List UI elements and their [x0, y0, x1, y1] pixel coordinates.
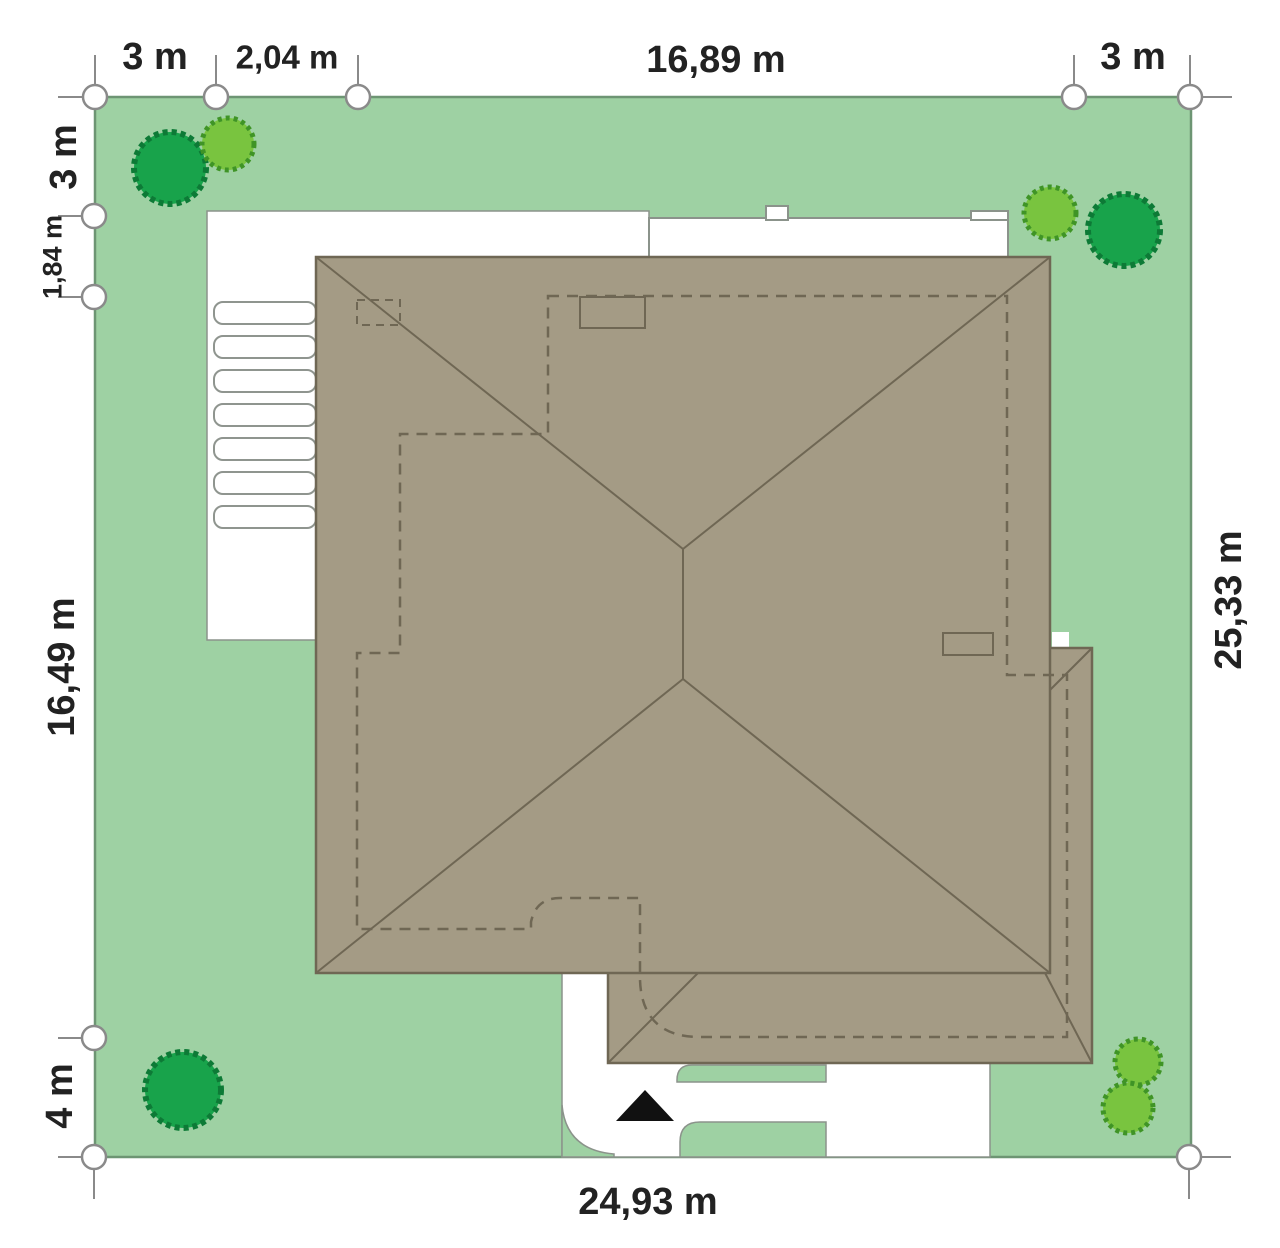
- dimension-node: [1178, 85, 1202, 109]
- tree-icon: [202, 118, 254, 170]
- dim-label-top-left: 3 m: [122, 38, 187, 76]
- dim-label-left-184: 1,84 m: [40, 215, 67, 299]
- dim-label-left-1649: 16,49 m: [43, 597, 81, 736]
- dimension-node: [82, 285, 106, 309]
- chimney: [943, 633, 993, 655]
- dim-label-right-2533: 25,33 m: [1210, 530, 1248, 669]
- tree-icon: [1088, 194, 1160, 266]
- site-plan: 3 m 2,04 m 16,89 m 3 m 3 m 1,84 m 16,49 …: [0, 0, 1280, 1248]
- dim-label-top-204: 2,04 m: [236, 41, 339, 74]
- dimension-node: [82, 1026, 106, 1050]
- balcony-step: [971, 211, 1008, 220]
- tree-icon: [145, 1052, 221, 1128]
- main-roof: [316, 257, 1050, 973]
- pergola-slats: [214, 302, 316, 528]
- dimension-node: [1177, 1145, 1201, 1169]
- tree-icon: [1115, 1039, 1161, 1085]
- dim-label-left-4m: 4 m: [41, 1063, 79, 1128]
- dim-label-top-right: 3 m: [1100, 38, 1165, 76]
- dim-label-bottom-2493: 24,93 m: [578, 1183, 717, 1221]
- dimension-node: [83, 85, 107, 109]
- balcony-step: [766, 206, 788, 220]
- tree-icon: [1103, 1083, 1153, 1133]
- dim-label-top-1689: 16,89 m: [646, 41, 785, 79]
- dim-label-left-3m: 3 m: [45, 124, 83, 189]
- dimension-node: [82, 1145, 106, 1169]
- dimension-node: [204, 85, 228, 109]
- lawn-strip: [677, 1065, 826, 1082]
- dimension-node: [346, 85, 370, 109]
- chimney: [580, 297, 645, 328]
- tree-icon: [1024, 187, 1076, 239]
- balcony: [649, 218, 1008, 257]
- site-plan-drawing: [0, 0, 1280, 1248]
- dimension-node: [1062, 85, 1086, 109]
- paving-notch: [1052, 632, 1069, 648]
- dimension-node: [82, 204, 106, 228]
- lawn-strip: [680, 1122, 826, 1157]
- tree-icon: [134, 132, 206, 204]
